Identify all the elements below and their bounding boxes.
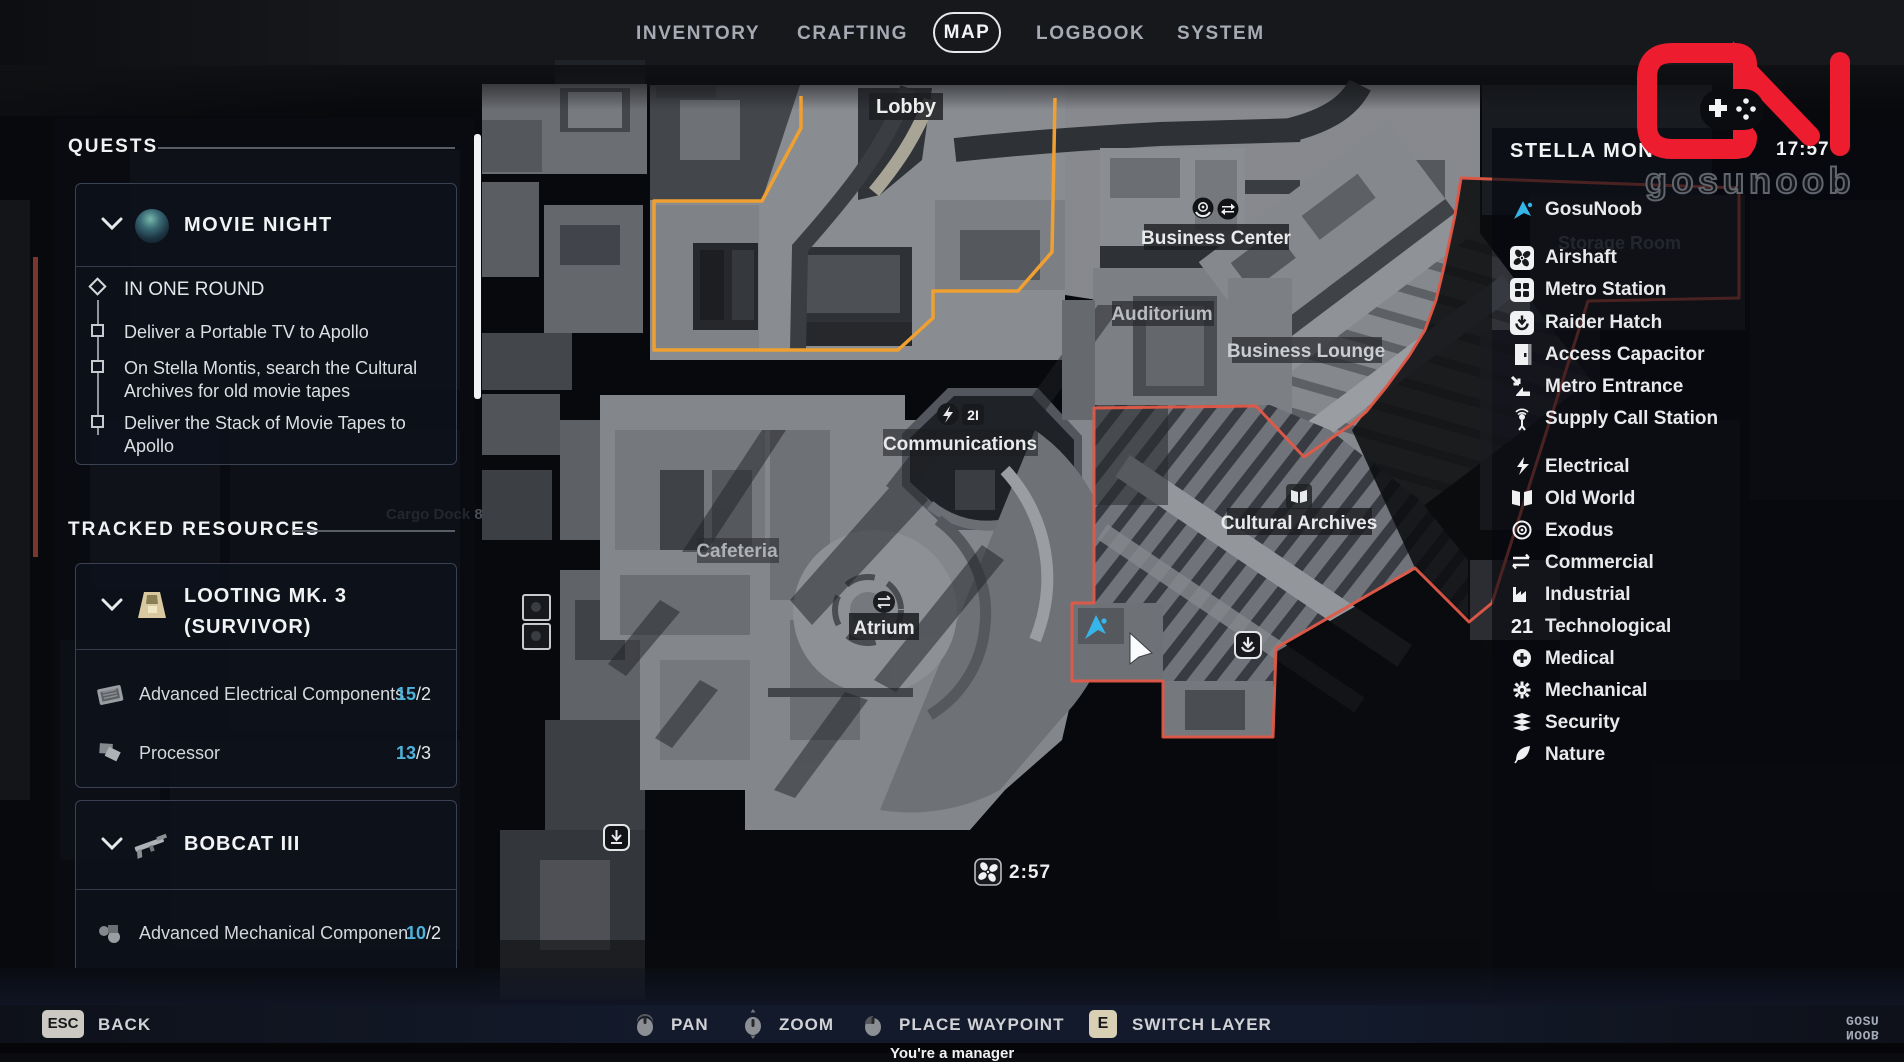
svg-text:Cafeteria: Cafeteria (696, 541, 778, 562)
svg-text:Cultural Archives: Cultural Archives (1221, 513, 1378, 534)
svg-text:Atrium: Atrium (853, 618, 914, 639)
svg-text:Auditorium: Auditorium (1111, 304, 1212, 325)
svg-text:Communications: Communications (883, 434, 1037, 455)
svg-text:Lobby: Lobby (876, 96, 937, 118)
svg-text:2I: 2I (967, 407, 979, 423)
svg-text:gosunoob: gosunoob (1645, 160, 1855, 201)
svg-text:Business Center: Business Center (1141, 228, 1292, 249)
svg-text:21: 21 (1511, 616, 1533, 637)
svg-text:Business Lounge: Business Lounge (1227, 341, 1385, 362)
